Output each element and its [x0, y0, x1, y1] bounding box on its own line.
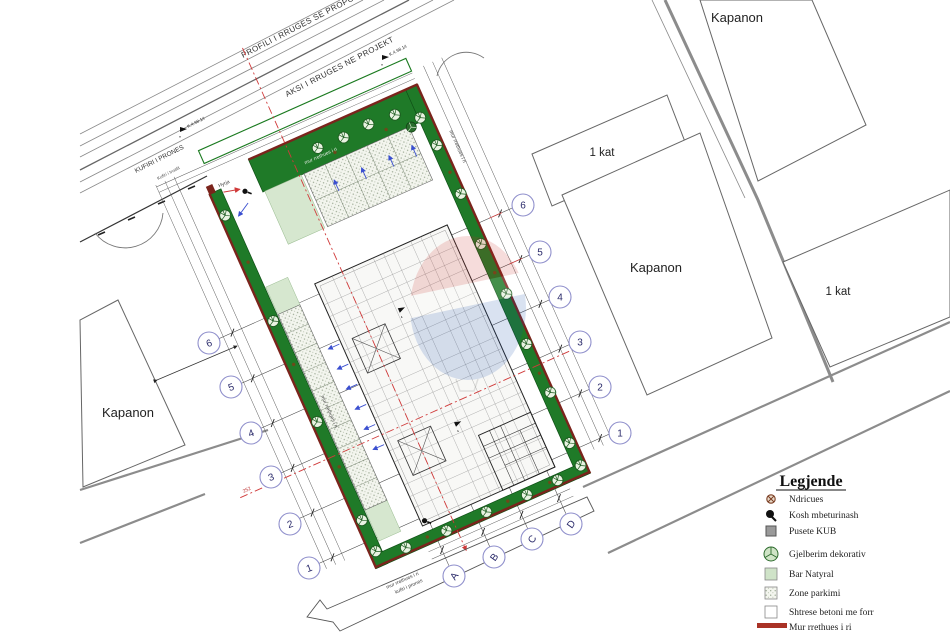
building-one-kat-bottom: [783, 190, 950, 367]
manhole-icon: [766, 526, 776, 536]
legend-item-label: Gjelberim dekorativ: [789, 550, 866, 560]
axis-bubble-6r: 6: [520, 201, 526, 212]
building-left: [80, 300, 185, 487]
grid-bubbles-numbers-left: 1 2 3 4 5 6: [198, 332, 320, 579]
entrance-label: Hyrja: [218, 179, 231, 189]
parcel-boundary-label: Kufiri i trualit: [156, 165, 181, 181]
legend-item-label: Kosh mbeturinash: [789, 511, 859, 521]
building-top-right-label: Kapanon: [711, 10, 763, 25]
survey-marker-label: K.4.98.14: [388, 43, 408, 56]
legend: Legjende Ndricues Kosh mbeturinash Puset…: [757, 473, 875, 633]
natural-bar-icon: [765, 568, 777, 580]
axis-bubble-3r: 3: [577, 338, 583, 349]
legend-item-label: Shtrese betoni me forr: [789, 607, 875, 618]
tree-icon: [764, 547, 778, 561]
concrete-icon: [765, 606, 777, 618]
site-plan-drawing: PROFILI I RRUGES SE PROPOZUAR AKSI I RRU…: [0, 0, 950, 633]
axis-bubble-4r: 4: [557, 293, 563, 304]
legend-item-label: Bar Natyral: [789, 570, 834, 580]
road-axis-label: AKSI I RRUGES NE PROJEKT: [284, 35, 396, 99]
legend-item-label: Ndricues: [789, 495, 824, 505]
boundary-arrow-shape: [307, 497, 594, 631]
building-top-right: [700, 0, 866, 181]
legend-item-label: Mur rrethues i ri: [789, 623, 852, 633]
one-kat-bottom-label: 1 kat: [826, 286, 852, 298]
trash-icon: [766, 510, 776, 521]
one-kat-top-label: 1 kat: [590, 147, 616, 159]
entrance-arrow: [223, 186, 239, 196]
dimension-line: [157, 346, 237, 380]
axis-bubble-2r: 2: [597, 383, 603, 394]
site-plan-page: PROFILI I RRUGES SE PROPOZUAR AKSI I RRU…: [0, 0, 950, 633]
light-icon: [767, 495, 775, 503]
legend-title: Legjende: [779, 473, 842, 490]
survey-marker-label: K.4.98.14: [186, 115, 206, 128]
axis-bubble-1r: 1: [617, 429, 623, 440]
parking-zone-icon: [765, 587, 777, 599]
legend-item-label: Pusete KUB: [789, 527, 836, 537]
legend-item-label: Zone parkimi: [789, 589, 841, 599]
building-middle-right-label: Kapanon: [630, 260, 682, 275]
wall-icon: [757, 623, 787, 628]
site-frame: 252: [73, 0, 645, 633]
building-left-label: Kapanon: [102, 405, 154, 420]
axis-bubble-5r: 5: [537, 248, 543, 259]
